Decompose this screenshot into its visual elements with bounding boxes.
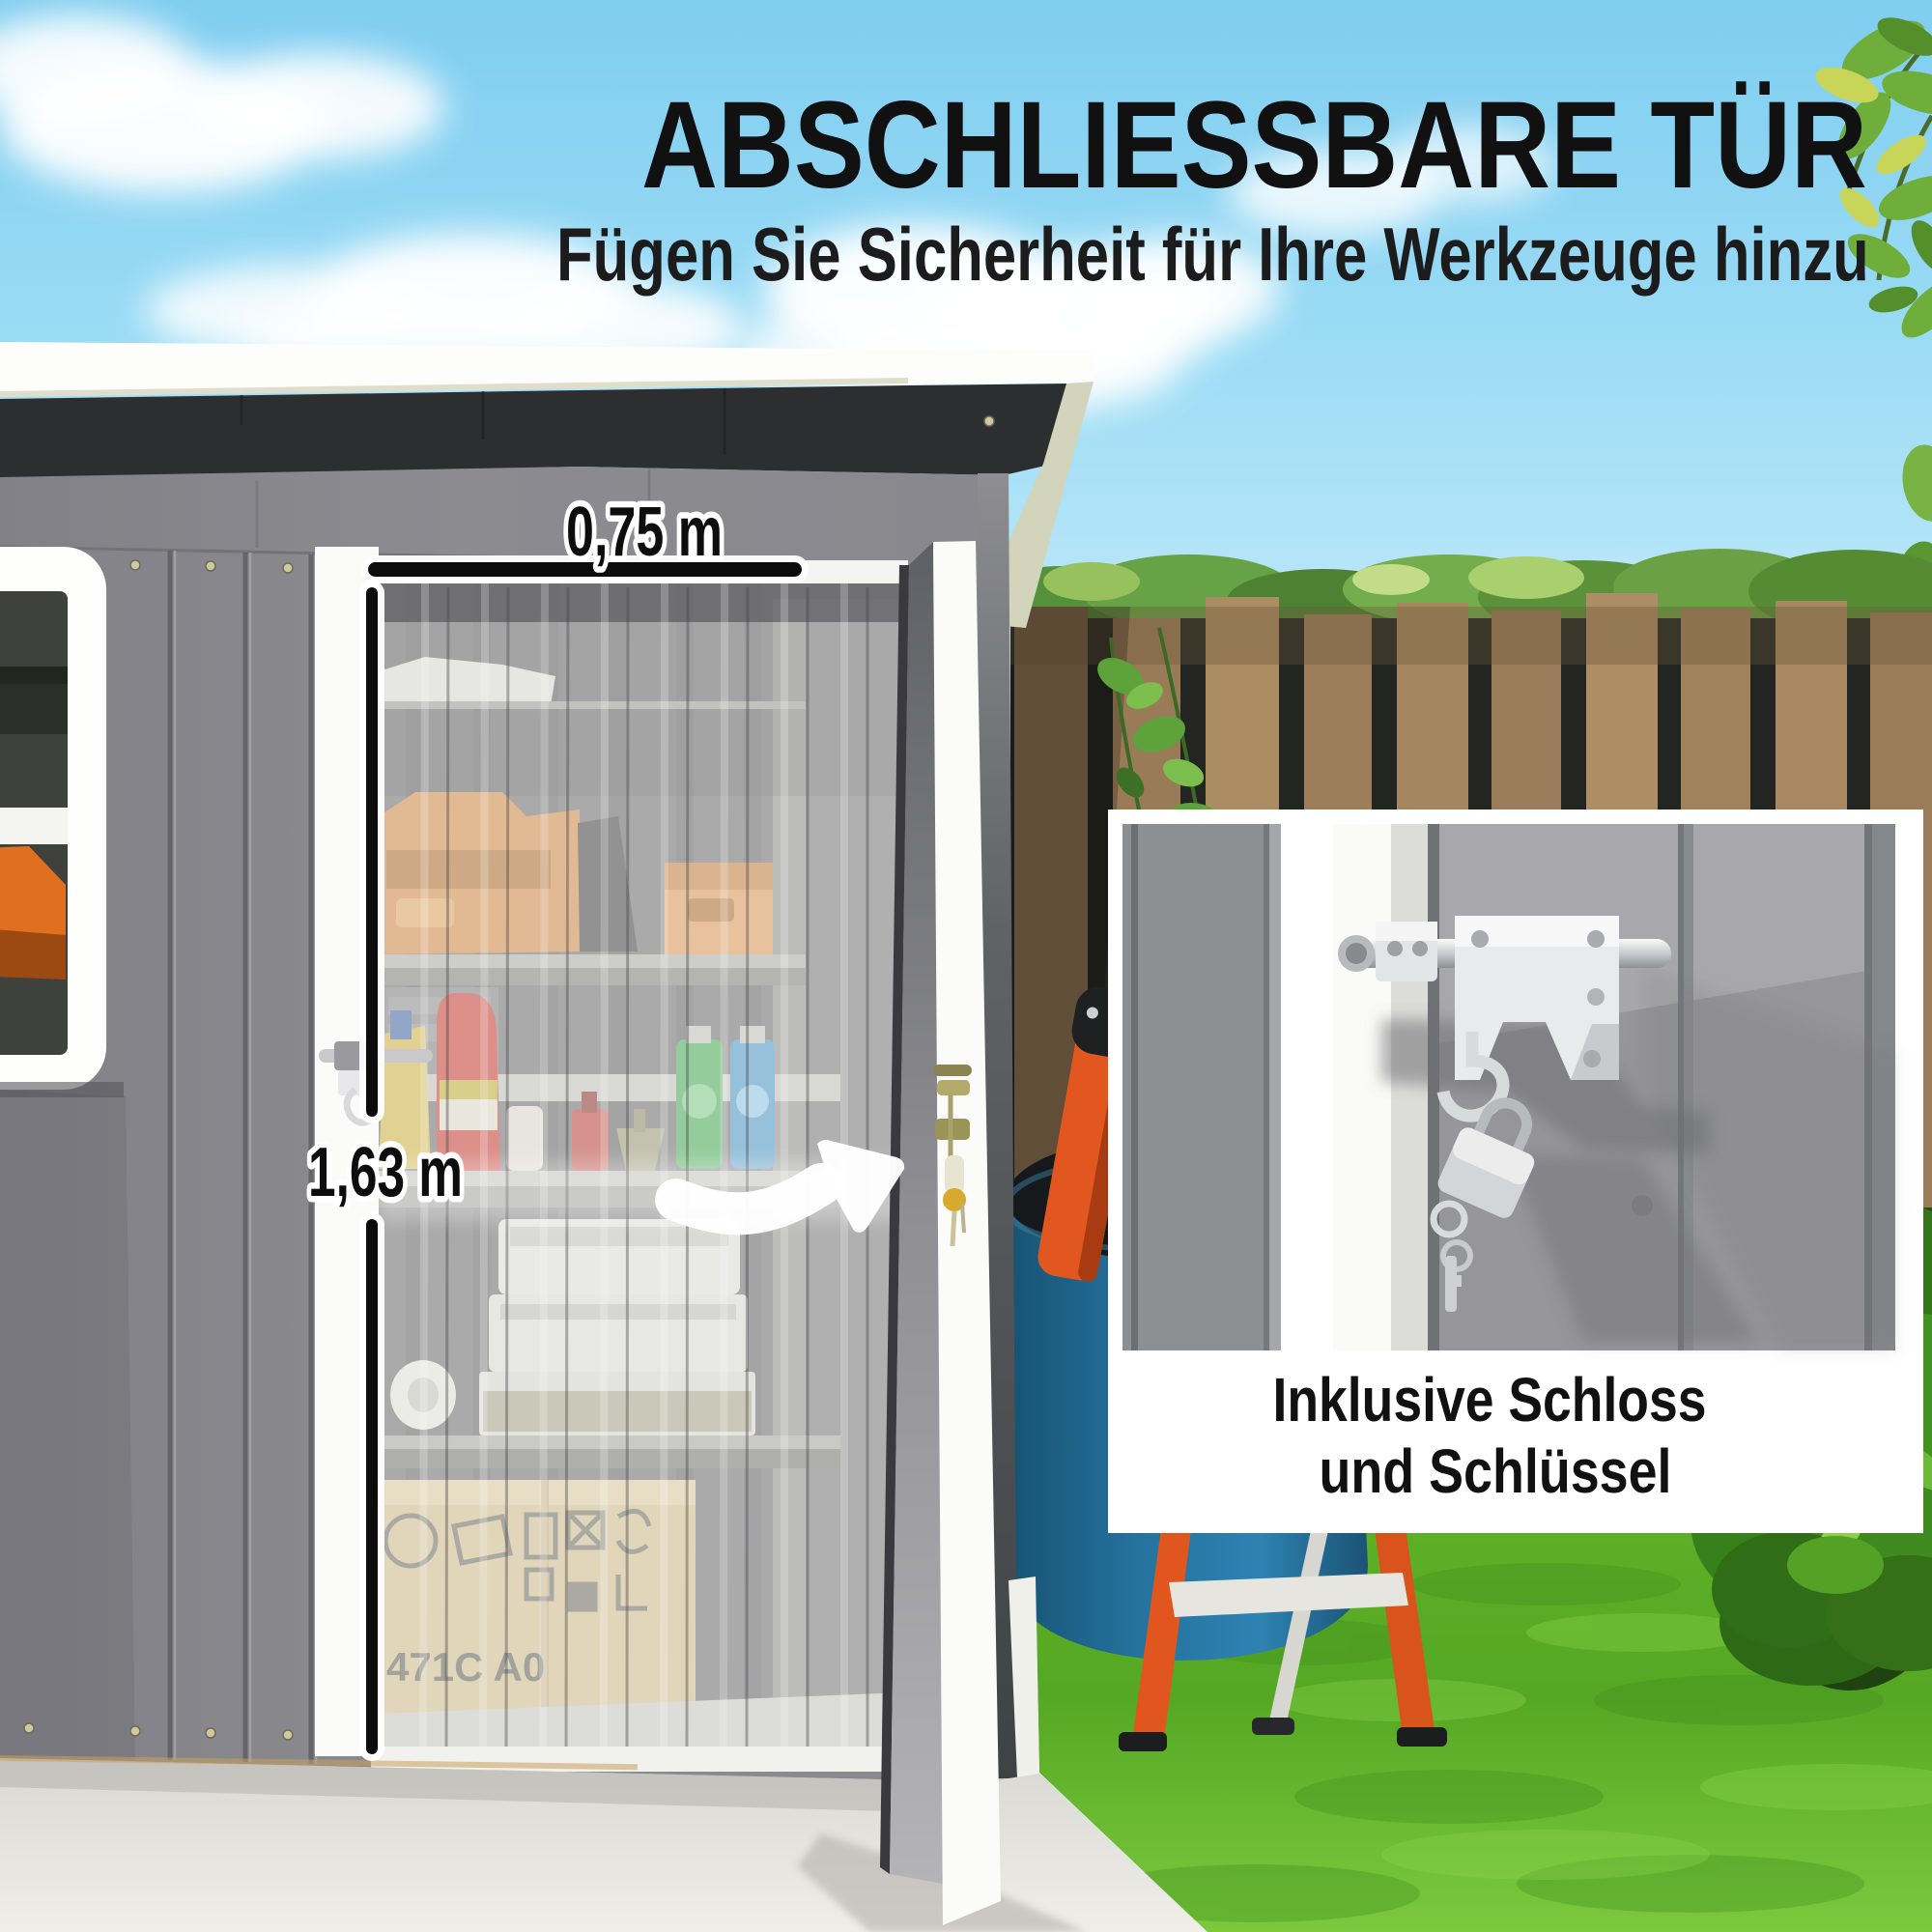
svg-text:und Schlüssel: und Schlüssel — [1320, 1436, 1672, 1506]
svg-text:ABSCHLIESSBARE TÜR: ABSCHLIESSBARE TÜR — [641, 76, 1867, 214]
svg-text:Fügen Sie Sicherheit für Ihre: Fügen Sie Sicherheit für Ihre Werkzeuge … — [556, 212, 1869, 297]
svg-text:0,75 m: 0,75 m — [566, 494, 723, 571]
svg-text:Inklusive Schloss: Inklusive Schloss — [1273, 1365, 1707, 1435]
svg-text:1,63 m: 1,63 m — [308, 1134, 463, 1211]
